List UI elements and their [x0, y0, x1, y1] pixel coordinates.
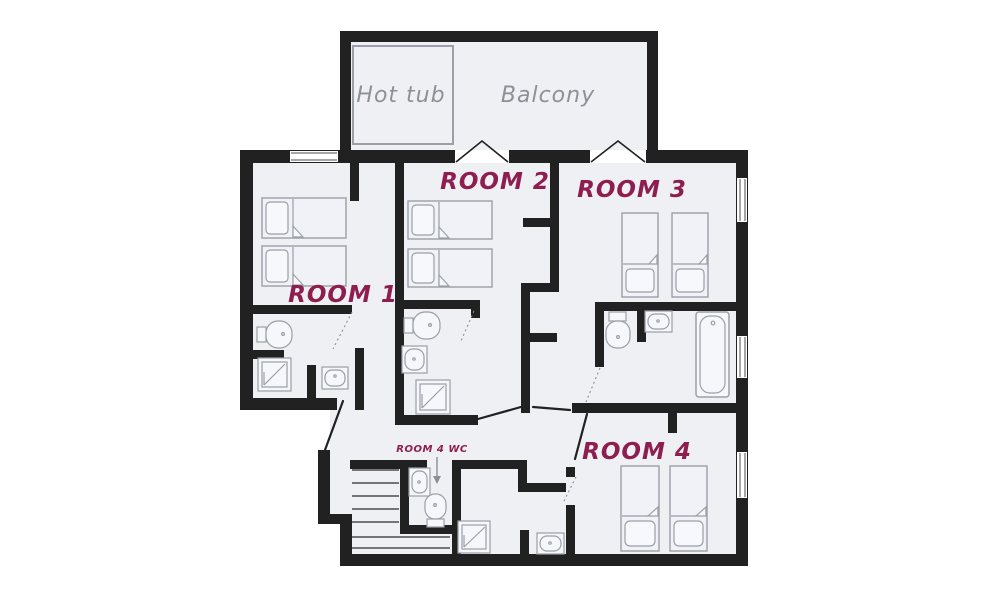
room3-bathtub: [696, 312, 729, 397]
room2-bed-2: [408, 249, 492, 287]
room1-bed-1: [262, 198, 346, 238]
wall-segment: [595, 302, 604, 367]
room2-bed-1: [408, 201, 492, 239]
room3-bed-1: [622, 213, 658, 297]
room4-bed-2: [670, 466, 707, 551]
wall-segment: [307, 365, 316, 410]
room4-bed-1: [621, 466, 659, 551]
room1-bed-2: [262, 246, 346, 286]
wall-segment: [318, 450, 330, 522]
wall-segment: [240, 150, 253, 410]
wall-segment: [340, 31, 351, 155]
wall-segment: [395, 415, 478, 425]
wall-segment: [350, 163, 359, 201]
wall-segment: [595, 302, 740, 311]
wall-segment: [523, 483, 566, 492]
wc-sink: [409, 468, 430, 496]
window-right-1: [737, 178, 747, 222]
room3-bed-2: [672, 213, 708, 297]
wall-segment: [400, 462, 409, 534]
room1-label: ROOM 1: [288, 282, 398, 308]
floor-plan: Hot tub Balcony ROOM 1 ROOM 2 ROOM 3 ROO…: [0, 0, 1000, 600]
wall-segment: [340, 31, 658, 42]
room1-sink: [322, 367, 348, 389]
balcony-label: Balcony: [501, 83, 595, 108]
wall-segment: [572, 403, 740, 413]
room4-shower: [458, 521, 490, 553]
floor-plan-page: Hot tub Balcony ROOM 1 ROOM 2 ROOM 3 ROO…: [0, 0, 1000, 600]
room1-shower: [258, 358, 291, 391]
wall-segment: [452, 460, 527, 469]
room4-sink: [537, 533, 564, 554]
wall-segment: [566, 505, 575, 556]
room2-shower: [416, 380, 450, 414]
room2-label: ROOM 2: [440, 169, 550, 195]
room3-toilet: [606, 312, 630, 348]
room2-sink: [402, 346, 427, 373]
wall-segment: [395, 300, 480, 309]
room3-label: ROOM 3: [577, 177, 687, 203]
wc-toilet: [425, 494, 446, 527]
window-top: [290, 151, 338, 162]
wall-segment: [523, 218, 552, 227]
room3-sink: [645, 311, 672, 332]
room4-wc-label: ROOM 4 WC: [396, 444, 468, 455]
wall-segment: [520, 530, 529, 556]
wall-segment: [647, 31, 658, 155]
wall-segment: [471, 300, 480, 318]
wall-segment: [240, 398, 337, 410]
wall-segment: [340, 554, 748, 566]
window-right-2: [737, 336, 747, 378]
wall-segment: [566, 467, 575, 477]
wall-segment: [668, 413, 677, 433]
wall-segment: [521, 283, 530, 413]
hot-tub-label: Hot tub: [356, 83, 445, 108]
wall-segment: [355, 348, 364, 410]
window-right-3: [737, 452, 747, 498]
wall-segment: [521, 333, 557, 342]
room4-label: ROOM 4: [582, 439, 692, 465]
